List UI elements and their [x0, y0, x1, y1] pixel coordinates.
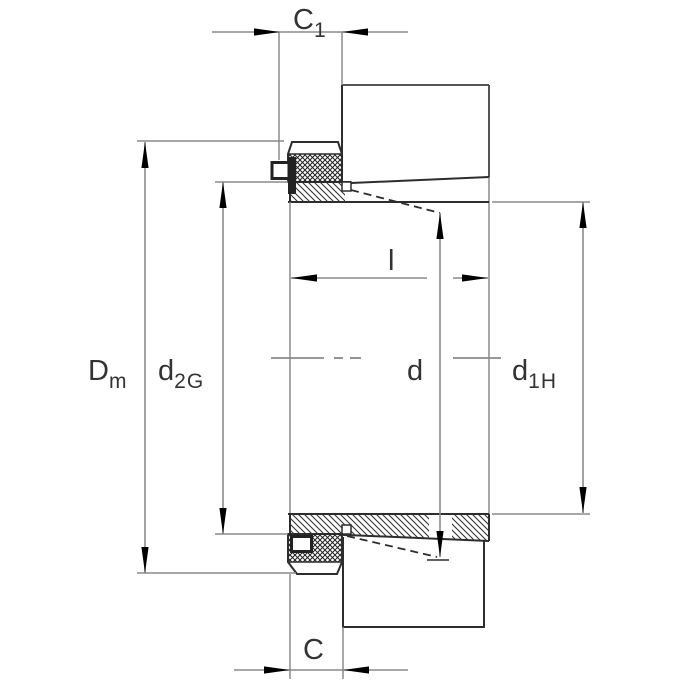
dimension-l: l [291, 245, 488, 282]
label-d1h: d1H [512, 355, 557, 393]
l-arrow-left [291, 274, 317, 281]
dimension-d: d [407, 213, 444, 557]
sleeve-section-hatch-bottom-right [452, 514, 489, 541]
taper-surface-top [351, 177, 489, 183]
label-l: l [388, 245, 394, 277]
dm-arrow-bottom [141, 547, 148, 573]
dm-arrow-top [141, 142, 148, 168]
dimension-c1: C1 [212, 4, 408, 160]
drawing-canvas: C1 Dm d2G l d d1H [0, 0, 680, 680]
dimension-d2g: d2G [158, 182, 288, 534]
dimension-d1h: d1H [492, 202, 590, 514]
d1h-arrow-top [579, 202, 586, 228]
label-c: C [303, 634, 324, 666]
lockwasher-tab-bottom [292, 537, 312, 552]
l-arrow-right [462, 274, 488, 281]
c-arrow-right [343, 666, 369, 673]
d2g-arrow-bottom [219, 508, 226, 534]
d2g-arrow-top [219, 182, 226, 208]
thread-relief-notch-top [342, 182, 351, 191]
d-arrow-bottom [436, 531, 443, 557]
c1-arrow-right [342, 28, 368, 35]
lockwasher-tab-top [272, 163, 289, 179]
dimension-dm: Dm [88, 141, 296, 573]
c1-arrow-left [254, 28, 280, 35]
thread-relief-notch-bottom [342, 525, 351, 534]
locknut-bottom [288, 534, 342, 574]
d1h-arrow-bottom [579, 487, 586, 513]
bottom-ring-outline [343, 537, 484, 627]
d-arrow-top [436, 213, 443, 239]
adapter-sleeve-diagram: C1 Dm d2G l d d1H [0, 0, 680, 680]
c-arrow-left [264, 666, 290, 673]
label-d2g: d2G [158, 355, 204, 393]
label-c1: C1 [293, 4, 327, 42]
label-dm: Dm [88, 355, 127, 393]
thread-section-hatch-top [290, 182, 345, 202]
locknut-top-hatch [288, 154, 342, 182]
label-d: d [407, 355, 423, 387]
